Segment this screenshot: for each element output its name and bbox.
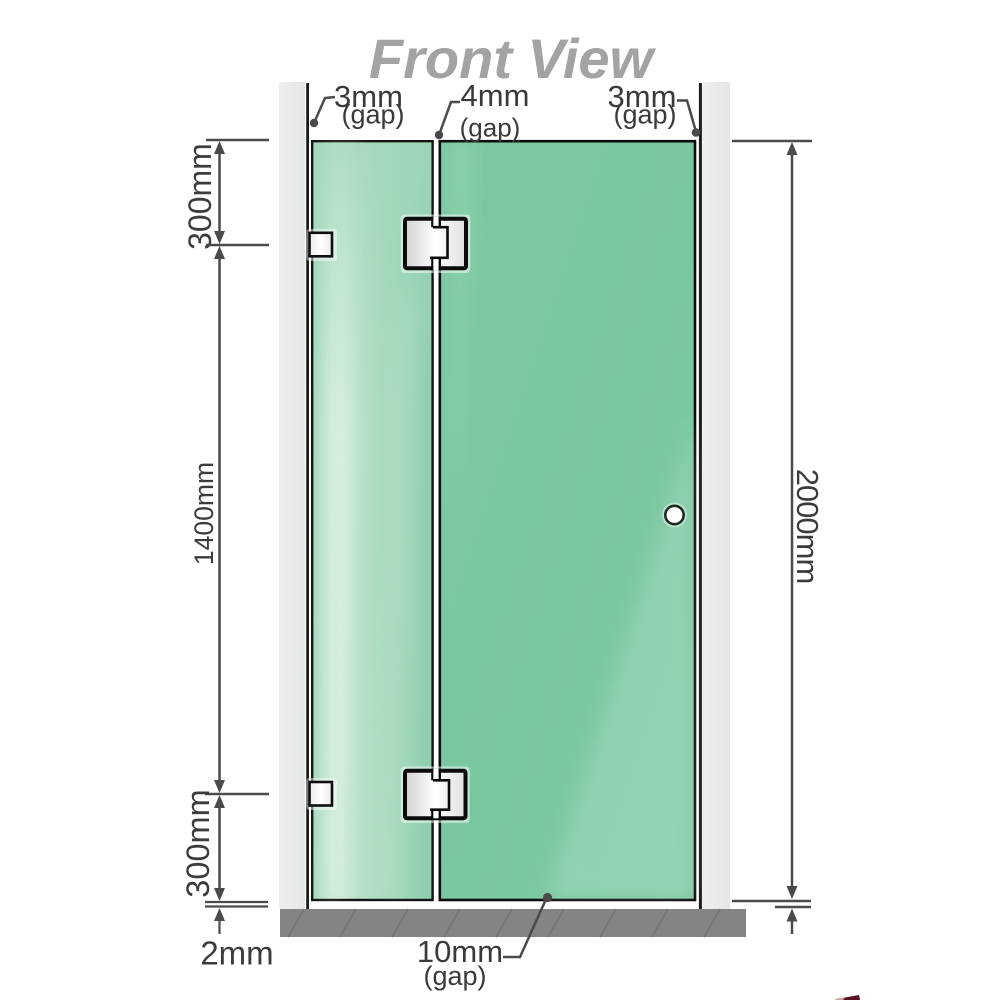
svg-text:1400mm: 1400mm <box>189 462 219 565</box>
svg-text:300mm: 300mm <box>182 143 218 250</box>
svg-text:4mm: 4mm <box>461 78 530 113</box>
svg-text:(gap): (gap) <box>460 113 521 143</box>
svg-text:(gap): (gap) <box>613 100 676 130</box>
svg-text:(gap): (gap) <box>423 961 486 991</box>
svg-text:2000mm: 2000mm <box>790 469 825 584</box>
svg-text:300mm: 300mm <box>180 789 216 897</box>
svg-text:2mm: 2mm <box>200 935 273 972</box>
svg-text:(gap): (gap) <box>341 100 404 130</box>
